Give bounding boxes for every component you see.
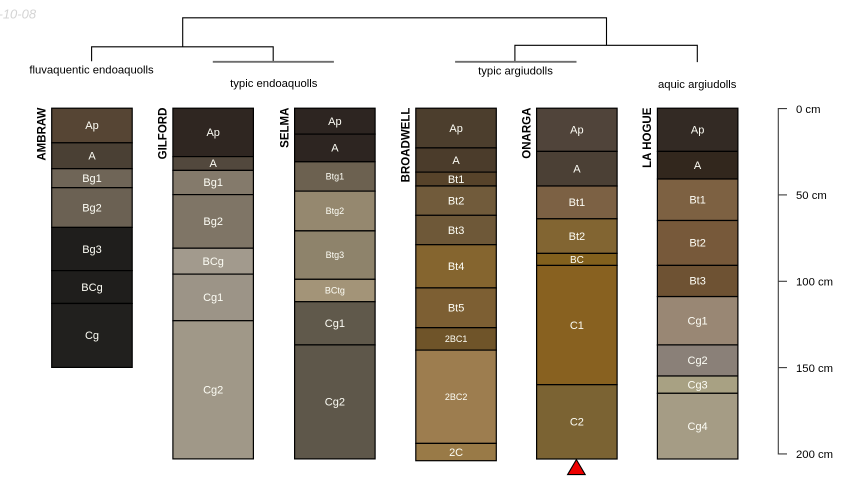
svg-text:Ap: Ap — [206, 127, 219, 139]
svg-text:Cg4: Cg4 — [688, 421, 708, 433]
svg-text:Cg1: Cg1 — [325, 318, 345, 330]
svg-text:GILFORD: GILFORD — [158, 108, 170, 160]
svg-text:BC: BC — [570, 255, 584, 266]
svg-text:typic argiudolls: typic argiudolls — [478, 66, 553, 78]
svg-text:BCg: BCg — [202, 256, 223, 268]
svg-text:Bt4: Bt4 — [448, 261, 465, 273]
svg-text:Ap: Ap — [328, 116, 341, 128]
svg-text:Bt3: Bt3 — [448, 225, 465, 237]
svg-text:-10-08: -10-08 — [0, 7, 37, 22]
svg-text:typic endoaquolls: typic endoaquolls — [230, 78, 318, 90]
svg-text:Btg1: Btg1 — [326, 172, 345, 182]
svg-text:Btg2: Btg2 — [326, 206, 345, 216]
svg-text:C1: C1 — [570, 320, 584, 332]
svg-text:aquic argiudolls: aquic argiudolls — [658, 79, 737, 91]
svg-text:Cg1: Cg1 — [203, 292, 223, 304]
svg-text:2BC1: 2BC1 — [445, 334, 468, 344]
svg-text:Cg2: Cg2 — [325, 397, 345, 409]
svg-text:Ap: Ap — [570, 125, 583, 137]
svg-text:Cg: Cg — [85, 330, 99, 342]
svg-text:Bt1: Bt1 — [689, 195, 706, 207]
svg-text:BCtg: BCtg — [325, 286, 345, 296]
svg-text:Bg1: Bg1 — [203, 177, 223, 189]
svg-text:Ap: Ap — [449, 123, 462, 135]
svg-text:Bt3: Bt3 — [689, 276, 706, 288]
svg-text:BROADWELL: BROADWELL — [401, 108, 413, 183]
svg-text:Btg3: Btg3 — [326, 250, 345, 260]
svg-text:A: A — [88, 151, 96, 163]
svg-text:50 cm: 50 cm — [796, 190, 827, 202]
svg-text:Cg3: Cg3 — [688, 379, 708, 391]
svg-text:2BC2: 2BC2 — [445, 392, 468, 402]
svg-text:100 cm: 100 cm — [796, 277, 833, 289]
svg-text:Bt5: Bt5 — [448, 303, 465, 315]
svg-text:Ap: Ap — [691, 125, 704, 137]
svg-text:Bt2: Bt2 — [448, 195, 465, 207]
svg-text:200 cm: 200 cm — [796, 449, 833, 461]
svg-text:LA HOGUE: LA HOGUE — [642, 107, 654, 168]
svg-text:2C: 2C — [449, 447, 463, 459]
svg-text:Bg2: Bg2 — [203, 216, 223, 228]
svg-text:ONARGA: ONARGA — [521, 108, 533, 159]
svg-text:Cg2: Cg2 — [688, 355, 708, 367]
svg-text:Bg1: Bg1 — [82, 173, 102, 185]
svg-text:Bt2: Bt2 — [689, 238, 706, 250]
svg-text:SELMA: SELMA — [279, 108, 291, 148]
svg-text:A: A — [331, 143, 339, 155]
svg-text:Cg1: Cg1 — [688, 316, 708, 328]
svg-text:Ap: Ap — [85, 120, 98, 132]
svg-text:AMBRAW: AMBRAW — [36, 107, 48, 160]
svg-text:Bt2: Bt2 — [569, 231, 586, 243]
svg-text:C2: C2 — [570, 417, 584, 429]
svg-text:Bg2: Bg2 — [82, 202, 102, 214]
svg-text:A: A — [573, 163, 581, 175]
svg-text:BCg: BCg — [81, 282, 102, 294]
svg-text:Bt1: Bt1 — [569, 197, 586, 209]
svg-text:A: A — [694, 160, 702, 172]
svg-text:Bt1: Bt1 — [448, 174, 465, 186]
svg-text:fluvaquentic endoaquolls: fluvaquentic endoaquolls — [29, 64, 154, 76]
svg-text:150 cm: 150 cm — [796, 363, 833, 375]
svg-text:0 cm: 0 cm — [796, 104, 820, 116]
svg-text:A: A — [210, 158, 218, 170]
svg-text:Bg3: Bg3 — [82, 244, 102, 256]
svg-text:Cg2: Cg2 — [203, 385, 223, 397]
svg-text:A: A — [452, 155, 460, 167]
